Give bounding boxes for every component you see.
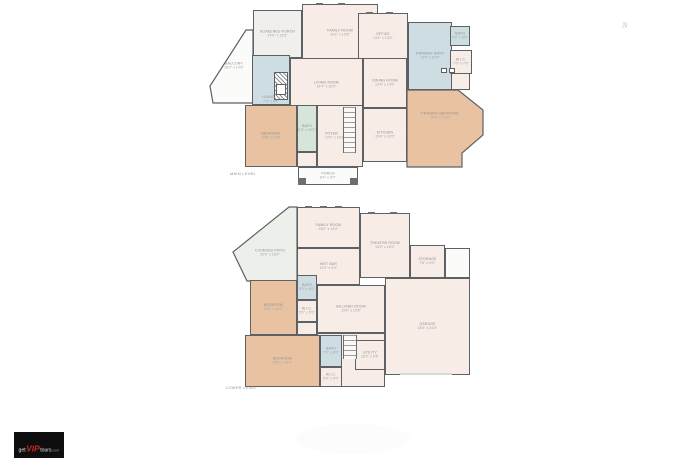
stairs-lower <box>343 335 357 359</box>
room-office: OFFICE13'4" x 13'0" <box>358 13 408 60</box>
room-label: BEDROOM <box>273 357 292 362</box>
room-bedroom-main: BEDROOM13'8" x 13'0" <box>245 105 297 167</box>
room-dining: DINING ROOM13'4" x 14'0" <box>363 58 407 108</box>
room-label: PORCH <box>321 172 334 177</box>
room-label: STORAGE <box>418 257 436 262</box>
brand-logo: getVIPtours.com <box>14 432 64 458</box>
room-balcony-label-area: BALCONY28'0" x 14'6" <box>216 56 252 76</box>
window-mark <box>386 12 393 14</box>
room-bedroom-lower-1: BEDROOM13'0" x 14'0" <box>250 280 297 335</box>
room-label: W.I.C. <box>456 58 466 63</box>
room-label: BALCONY <box>225 62 243 67</box>
room-label: FAMILY ROOM <box>316 223 342 228</box>
logo-text-tours: tours <box>40 448 51 453</box>
porch-post <box>350 178 358 185</box>
room-label: FOYER <box>325 132 338 137</box>
room-kitchen: KITCHEN15'4" x 13'0" <box>363 108 407 162</box>
room-mech-closet <box>445 248 470 278</box>
porch-post <box>298 178 306 185</box>
room-wic-lower-1: W.I.C.5'0" x 5'0" <box>297 300 317 322</box>
room-label: BATH <box>326 347 336 352</box>
room-label: BATH <box>302 283 312 288</box>
room-utility: UTILITY10'0" x 6'8" <box>355 340 385 370</box>
room-storage: STORAGE7'6" x 6'0" <box>410 245 445 278</box>
room-living: LIVING ROOM24'4" x 16'0" <box>290 58 363 112</box>
room-label: UTILITY <box>363 351 377 356</box>
room-label: SCREENED PORCH <box>260 30 295 35</box>
room-label: GARAGE <box>420 322 436 327</box>
room-bath-hall: BATH5'0" x 10'0" <box>297 105 317 152</box>
window-mark <box>335 206 342 208</box>
window-mark <box>390 212 397 214</box>
room-billiard: BILLIARD ROOM19'0" x 15'6" <box>317 285 385 333</box>
room-label: FAMILY ROOM <box>327 29 353 34</box>
room-closet-main <box>297 152 317 167</box>
room-label: W.I.C. <box>302 307 312 312</box>
window-mark <box>338 3 345 5</box>
room-covered-patio-label-area: COVERED PATIO20'0" x 18'0" <box>248 244 292 262</box>
room-porch: PORCH8'4" x 5'0" <box>298 167 358 185</box>
window-mark <box>320 206 327 208</box>
logo-text-com: .com <box>52 448 59 452</box>
watermark-smudge <box>295 424 410 454</box>
north-indicator: N <box>622 21 627 30</box>
floorplan-page: SCREENED PORCH14'0" x 13'6" FAMILY ROOM1… <box>0 0 690 460</box>
room-label: THEATRE ROOM <box>370 241 400 246</box>
room-label: DINING ROOM <box>372 79 398 84</box>
window-mark <box>368 212 375 214</box>
room-label: BILLIARD ROOM <box>336 305 365 310</box>
room-theatre: THEATRE ROOM15'0" x 18'0" <box>360 213 410 278</box>
room-hall-lower-2 <box>297 322 317 335</box>
room-bath-lower-1: BATH5'0" x 8'0" <box>297 275 317 300</box>
washer-dryer-icon <box>276 84 286 95</box>
room-family-lower: FAMILY ROOM16'0" x 14'0" <box>297 207 360 248</box>
window-mark <box>366 12 373 14</box>
room-label: KITCHEN <box>377 131 393 136</box>
room-primary-bath: PRIMARY BATH13'0" x 10'0" <box>408 22 452 90</box>
room-primary-bedroom-label-area: PRIMARY BEDROOM19'4" x 13'0" <box>410 104 470 128</box>
room-bath-lower-2: BATH7'0" x 8'0" <box>320 335 342 367</box>
stairs-main <box>343 107 356 153</box>
bath-fixture-icon <box>441 68 447 73</box>
room-label: LIVING ROOM <box>314 81 339 86</box>
room-wic-lower-2: W.I.C.5'0" x 5'0" <box>320 367 342 387</box>
room-screened-porch: SCREENED PORCH14'0" x 13'6" <box>253 10 302 58</box>
room-label: PRIMARY BEDROOM <box>421 112 458 117</box>
room-label: BATH <box>455 32 465 37</box>
primary-bedroom-shape <box>407 90 483 167</box>
logo-text-get: get <box>19 448 26 453</box>
room-label: W.I.C. <box>326 373 336 378</box>
room-bath-top: BATH6'0" x 6'0" <box>450 26 470 46</box>
room-bedroom-lower-2: BEDROOM15'0" x 13'0" <box>245 335 320 387</box>
garage-door-mark <box>400 373 452 375</box>
room-label: WET BAR <box>320 262 337 267</box>
window-mark <box>316 3 323 5</box>
room-label: BEDROOM <box>264 303 283 308</box>
room-label: OFFICE <box>376 32 390 37</box>
room-label: COVERED PATIO <box>255 249 285 254</box>
room-foyer: FOYER10'0" x 10'0" <box>317 105 363 167</box>
main-level-caption: MAIN LEVEL <box>230 172 256 176</box>
room-garage: GARAGE23'0" x 24'0" <box>385 278 470 375</box>
room-label: BATH <box>302 124 312 129</box>
window-mark <box>305 206 312 208</box>
room-label: BEDROOM <box>261 132 280 137</box>
lower-level-caption: LOWER LEVEL <box>226 386 257 390</box>
logo-text-vip: VIP <box>26 445 40 454</box>
room-label: PRIMARY BATH <box>416 52 444 57</box>
bath-fixture-icon <box>449 68 455 73</box>
